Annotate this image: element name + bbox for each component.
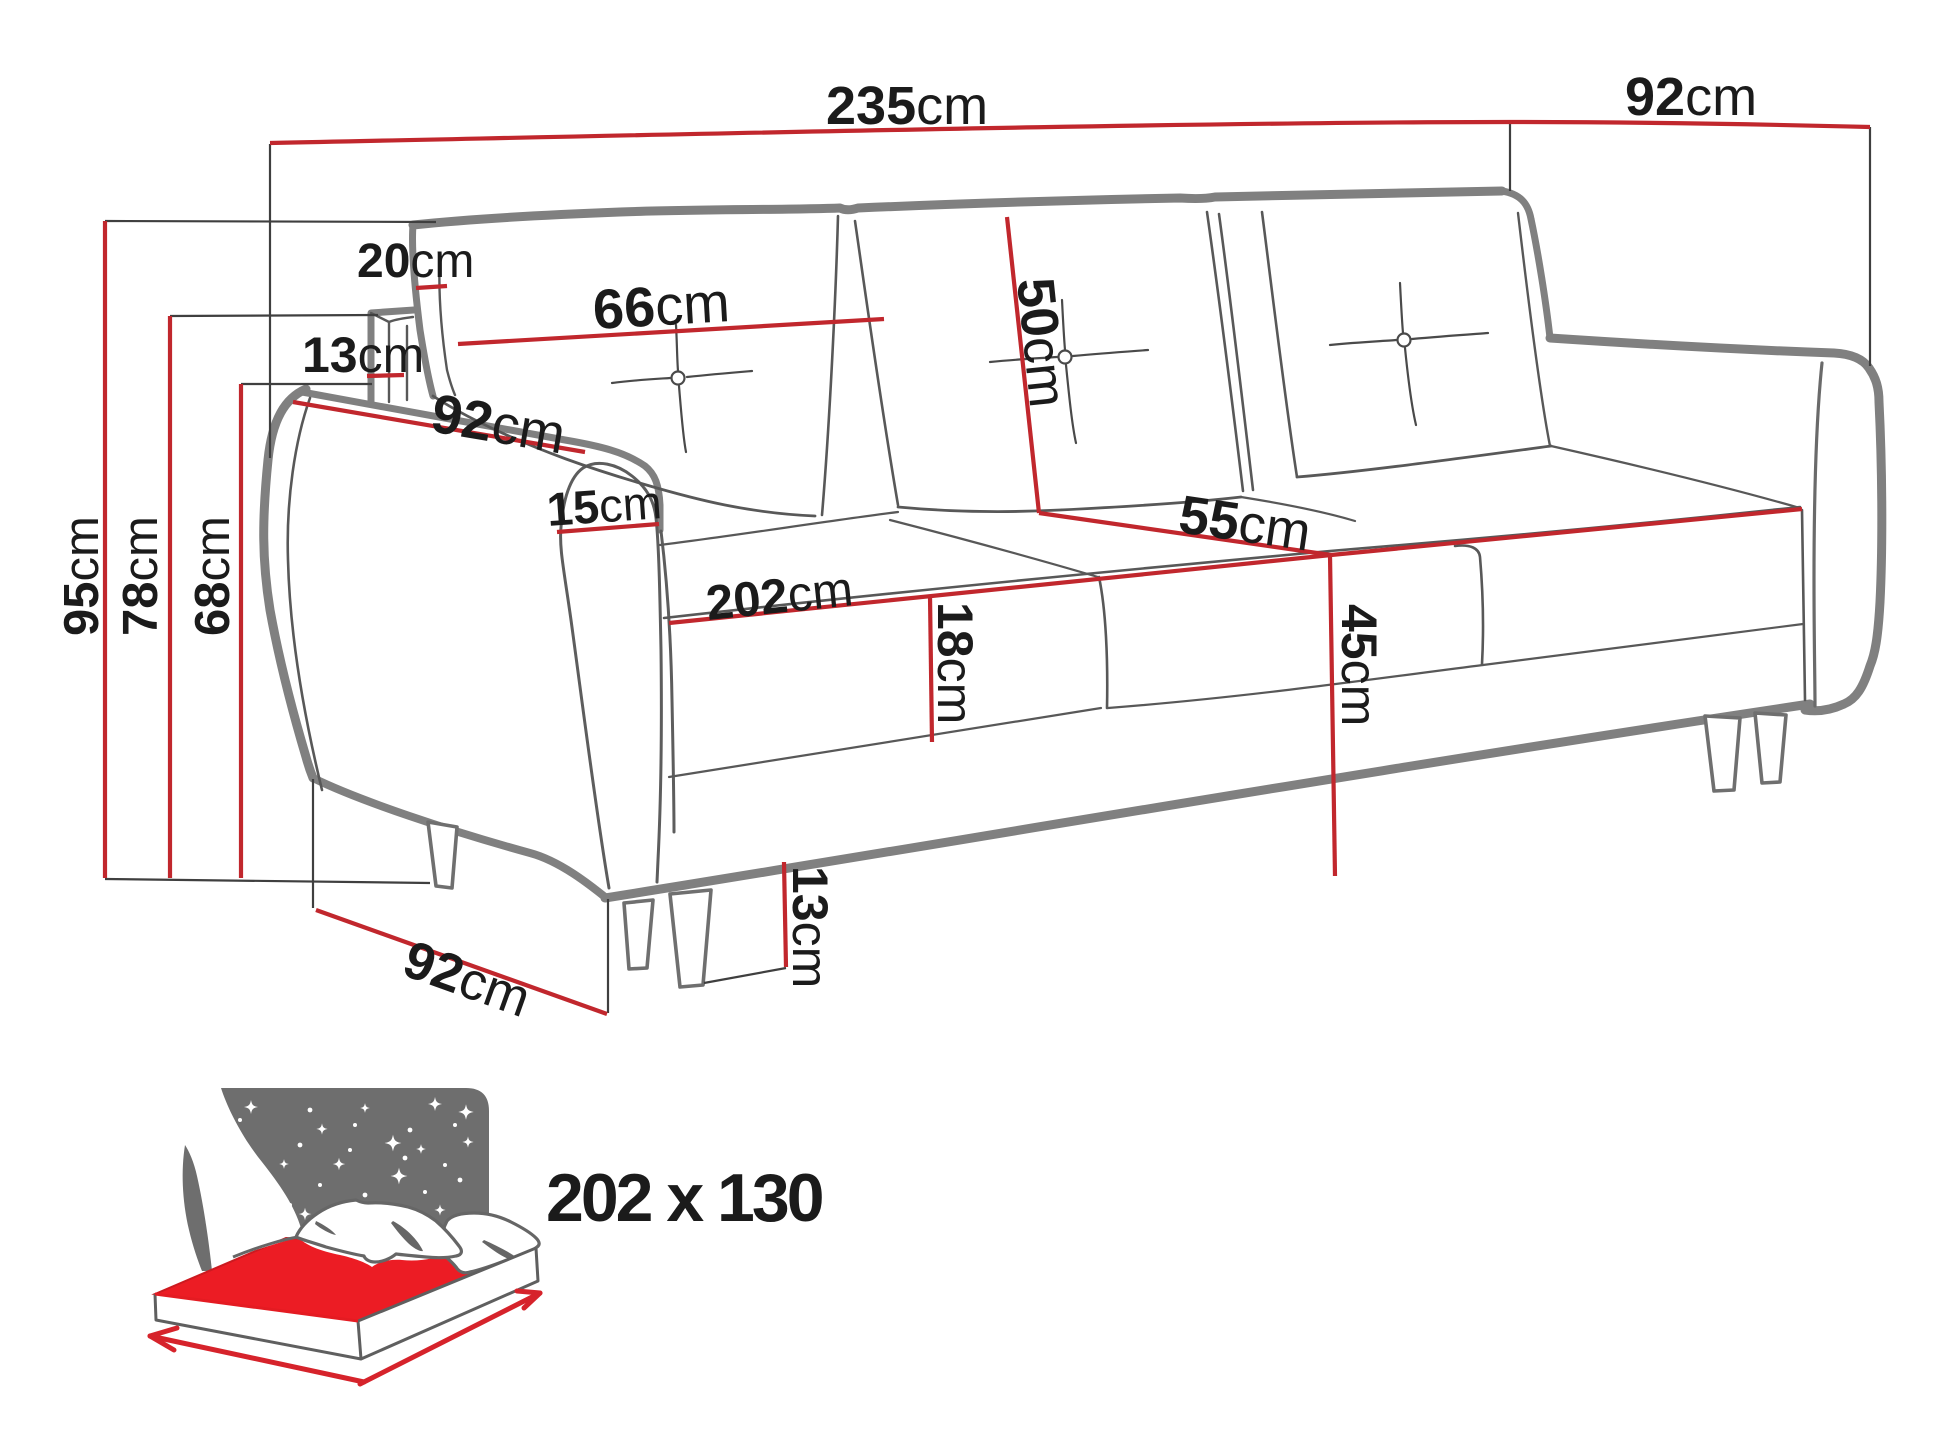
svg-text:68cm: 68cm (186, 516, 240, 636)
svg-text:78cm: 78cm (114, 516, 168, 636)
svg-text:92cm: 92cm (1625, 67, 1757, 127)
svg-text:45cm: 45cm (1331, 604, 1387, 726)
svg-text:18cm: 18cm (927, 602, 983, 724)
svg-text:13cm: 13cm (782, 866, 838, 988)
svg-text:202 x 130: 202 x 130 (546, 1160, 823, 1236)
svg-text:95cm: 95cm (55, 516, 109, 636)
svg-text:15cm: 15cm (545, 475, 663, 536)
svg-text:20cm: 20cm (357, 235, 474, 288)
svg-text:13cm: 13cm (302, 327, 424, 383)
svg-text:66cm: 66cm (591, 270, 731, 341)
svg-text:235cm: 235cm (826, 76, 988, 136)
